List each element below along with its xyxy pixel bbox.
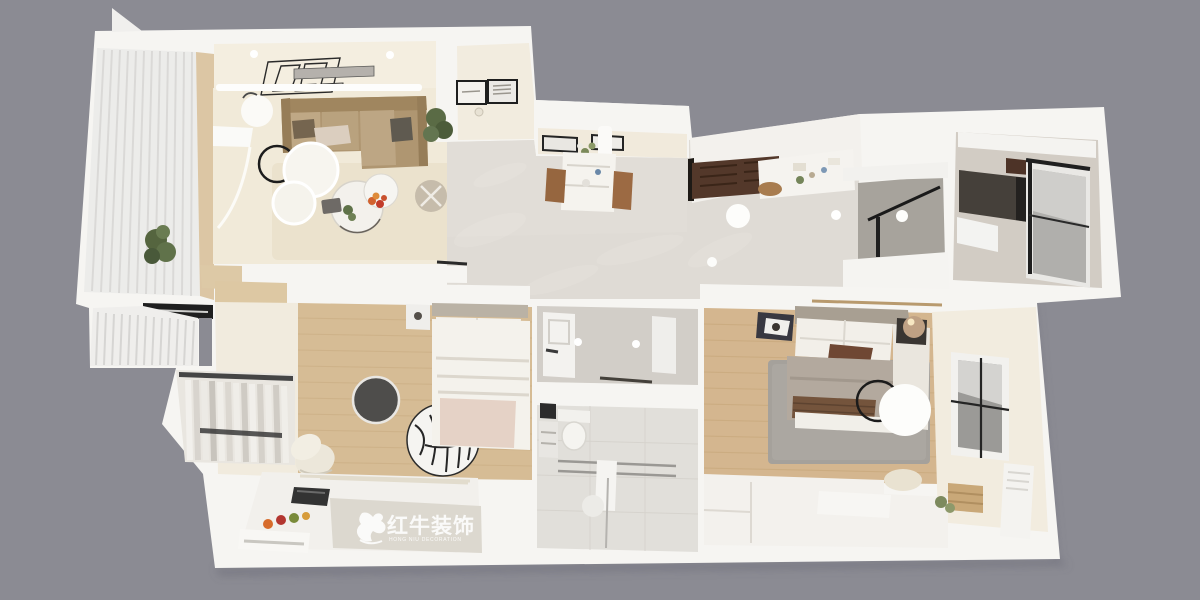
svg-text:HONG NIU DECORATION: HONG NIU DECORATION bbox=[389, 537, 462, 543]
svg-text:红牛装饰: 红牛装饰 bbox=[387, 514, 475, 538]
